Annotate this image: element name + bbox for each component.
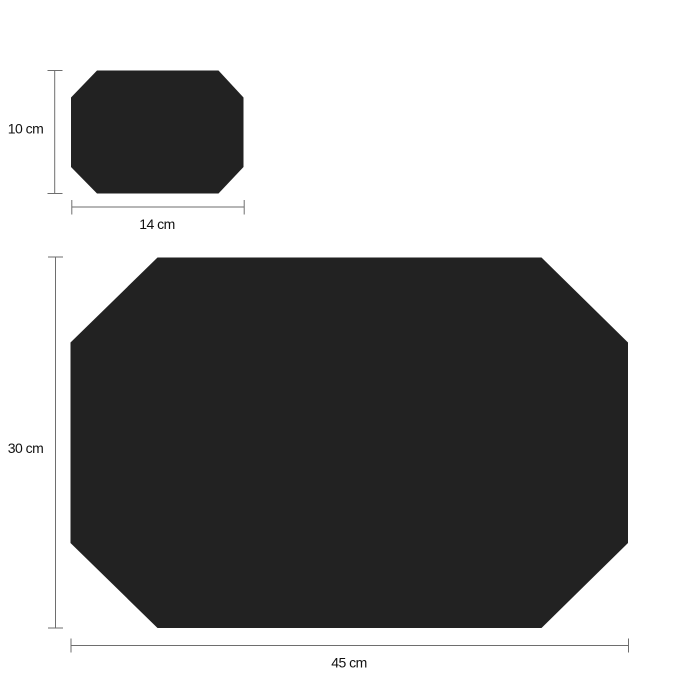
svg-text:45 cm: 45 cm [331,655,367,671]
svg-text:10 cm: 10 cm [8,121,44,137]
svg-text:30 cm: 30 cm [8,440,44,456]
svg-text:14 cm: 14 cm [139,216,175,232]
